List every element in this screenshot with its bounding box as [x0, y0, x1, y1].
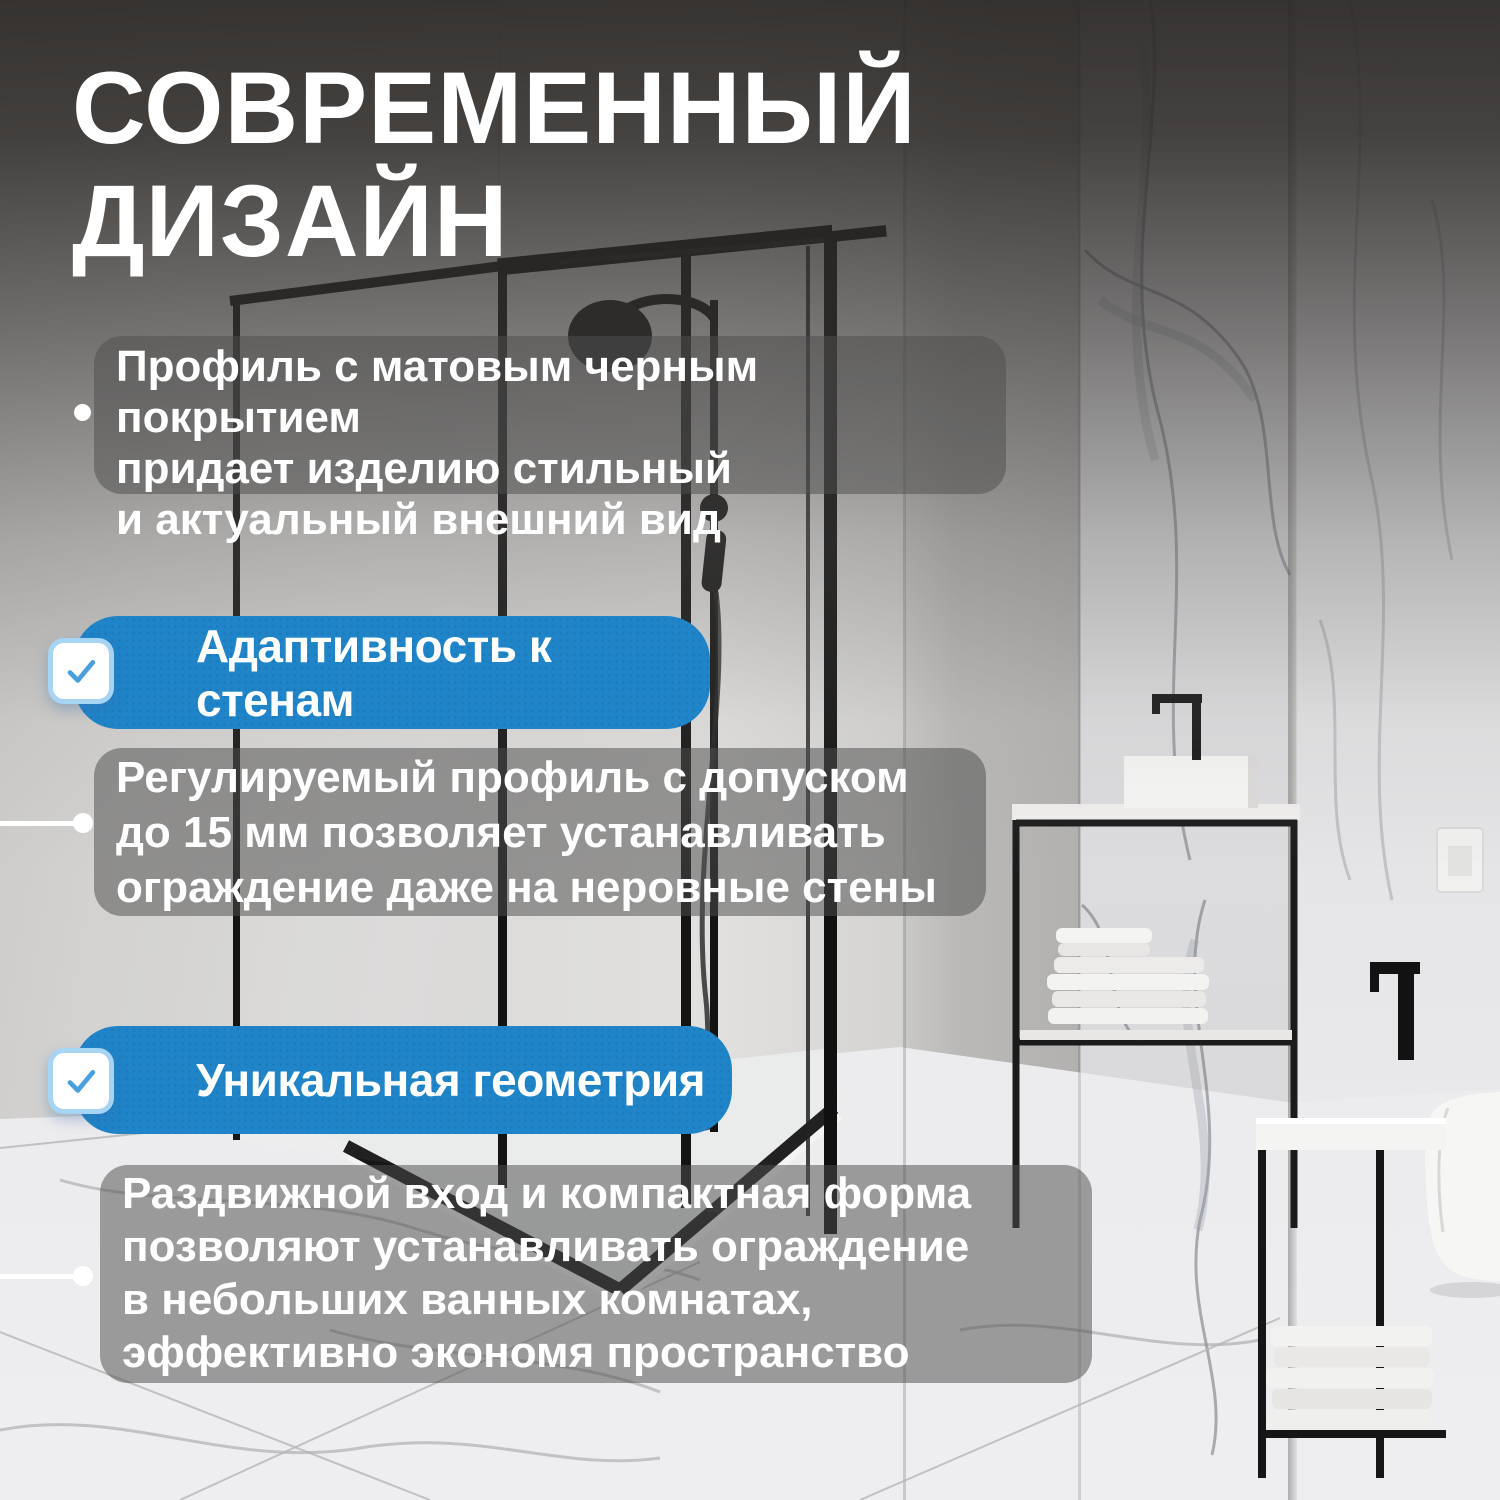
feature-text-line: в небольших ванных комнатах, [122, 1273, 1092, 1326]
connector-dot [73, 1266, 93, 1286]
feature-text-line: ограждение даже на неровные стены [116, 860, 986, 915]
connector-line [0, 1274, 78, 1279]
feature-text-line: позволяют устанавливать ограждение [122, 1220, 1092, 1273]
feature-text-line: Раздвижной вход и компактная форма [122, 1167, 1092, 1220]
checkbox-checked-icon [48, 1048, 114, 1114]
feature-badge-wall-adaptivity: Адаптивность к стенам [74, 616, 710, 729]
feature-text-block-2: Регулируемый профиль с допуском до 15 мм… [94, 748, 986, 916]
feature-text-block-3: Раздвижной вход и компактная форма позво… [100, 1165, 1092, 1383]
checkmark-icon [59, 1059, 103, 1103]
connector-dot [73, 813, 93, 833]
checkbox-checked-icon [48, 638, 114, 704]
feature-text-line: и актуальный внешний вид [116, 494, 1006, 545]
badge-label: Уникальная геометрия [196, 1053, 705, 1107]
title-line-1: СОВРЕМЕННЫЙ [72, 52, 917, 165]
feature-text-block-1: Профиль с матовым черным покрытием прида… [94, 336, 1006, 494]
feature-text-line: Регулируемый профиль с допуском [116, 750, 986, 805]
badge-label: Адаптивность к стенам [196, 619, 710, 727]
bullet-dot [74, 404, 91, 421]
connector-line [0, 821, 78, 826]
feature-badge-unique-geometry: Уникальная геометрия [74, 1026, 732, 1134]
checkmark-icon [59, 649, 103, 693]
feature-text-line: придает изделию стильный [116, 443, 1006, 494]
feature-text-line: Профиль с матовым черным покрытием [116, 341, 1006, 443]
feature-text-line: до 15 мм позволяет устанавливать [116, 805, 986, 860]
title-line-2: ДИЗАЙН [72, 165, 917, 278]
page-title: СОВРЕМЕННЫЙ ДИЗАЙН [72, 52, 917, 278]
feature-text-line: эффективно экономя пространство [122, 1326, 1092, 1379]
